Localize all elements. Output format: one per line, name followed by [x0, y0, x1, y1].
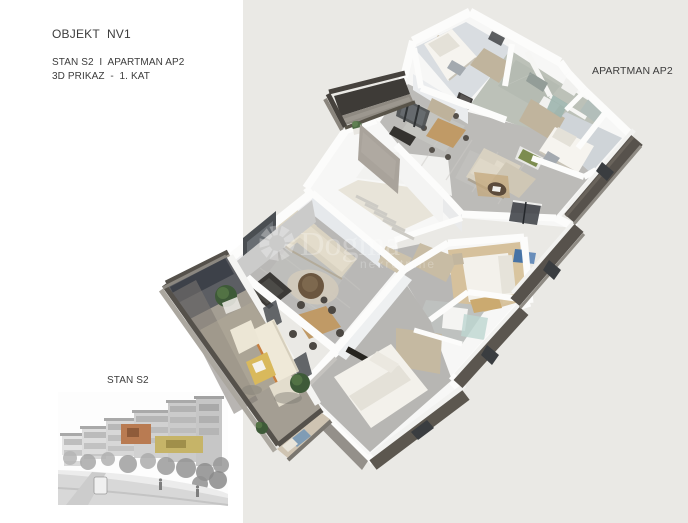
svg-text:nekretnine: nekretnine [360, 257, 436, 271]
